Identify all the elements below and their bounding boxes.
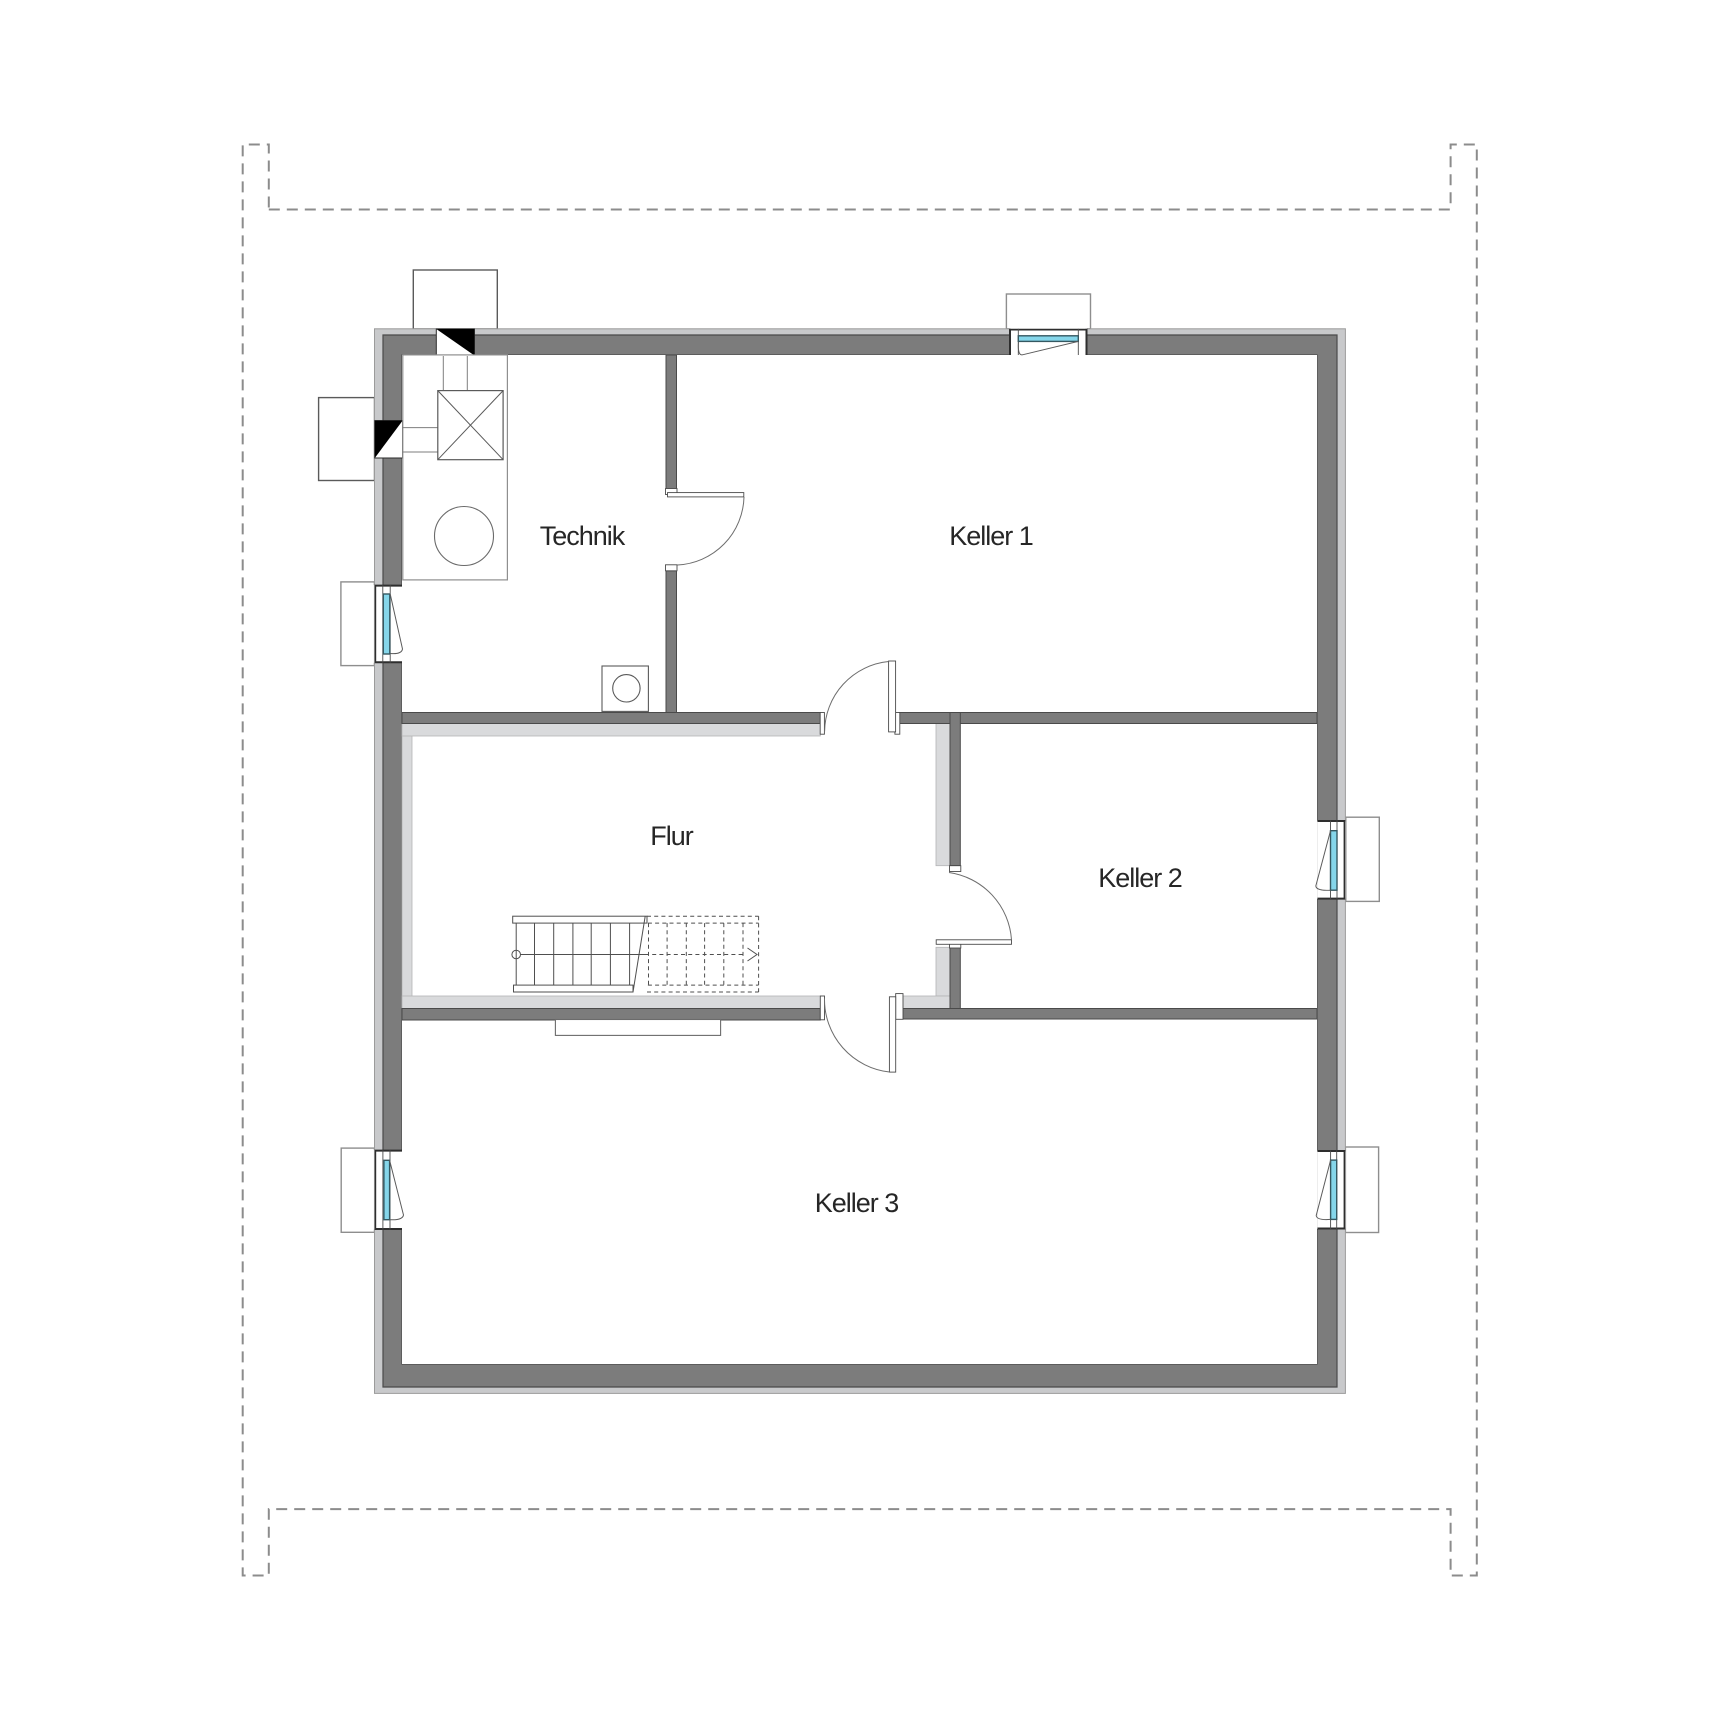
svg-text:Keller 2: Keller 2 (1098, 863, 1182, 893)
svg-text:Flur: Flur (650, 821, 694, 851)
svg-text:Technik: Technik (540, 521, 626, 551)
svg-text:Keller 1: Keller 1 (949, 521, 1033, 551)
svg-text:Keller 3: Keller 3 (815, 1188, 899, 1218)
